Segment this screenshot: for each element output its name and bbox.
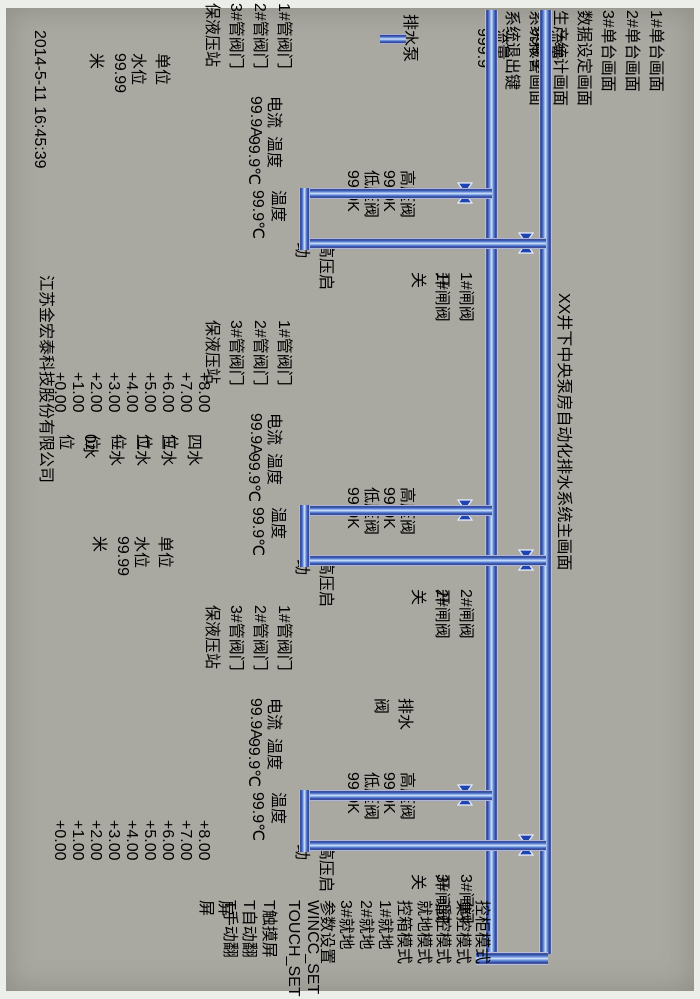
pump2-riser-b	[300, 555, 546, 566]
tank1-level-scale: +8.00+7.00+6.00+5.00+4.00+3.00+2.00+1.00…	[74, 372, 212, 430]
pump3-hv-start-label: 高压启动	[322, 844, 340, 896]
sensor-name: 电流	[264, 698, 288, 734]
scale-row: +1.00	[68, 820, 86, 878]
tank1-minor-ticks	[78, 373, 208, 377]
scale-label: +3.00	[104, 820, 122, 878]
pump2-gate-close-label: 2#闸阀关	[436, 589, 456, 647]
sensor-name: 低压阀	[361, 772, 385, 848]
drain-pump-pipe	[380, 34, 406, 44]
hydraulic-valve-label: 3#管阀门	[226, 320, 250, 386]
pump1-pump-cap-left	[226, 175, 294, 189]
pump3-riser-a	[300, 790, 492, 801]
sensor-name: 温度	[268, 190, 292, 230]
pump1-hp-valve-sensor: 高压阀99.9K	[401, 170, 421, 246]
pump2-hydraulic-pump-cap	[303, 323, 314, 331]
display-mini-label: 单位	[152, 53, 176, 153]
signal-line-2	[372, 40, 375, 872]
level-unit: 米	[86, 53, 110, 153]
display-mini-label: 单位	[155, 536, 179, 636]
pump3-hp-valve-sensor: 高压阀99.9K	[401, 772, 421, 848]
pump3-motor-current-label: 电流99.9A	[258, 698, 288, 734]
level-value: 99.99	[113, 536, 131, 636]
main-pipe-lower	[485, 10, 498, 955]
pump1-riser-b	[300, 238, 546, 249]
scale-row: +7.00	[176, 372, 194, 430]
mode-button-12[interactable]: T触摸屏	[266, 900, 283, 966]
pump2-hv-start-label: 高压启动	[322, 559, 340, 611]
pump1-motor-current-label: 电流99.9A	[258, 96, 288, 132]
mode-button-6[interactable]: 1#就地	[382, 900, 399, 966]
pump2-riser-a	[300, 505, 492, 516]
screenshot-viewport: 1#单台画面2#单台画面3#单台画面数据设定画面生产统计画面系统报警画面系统退出…	[0, 0, 700, 999]
scale-row: +7.00	[176, 820, 194, 878]
pump2-manifold	[299, 505, 310, 567]
mode-button-7[interactable]: 2#就地	[363, 900, 380, 966]
sensor-name: 温度	[268, 792, 292, 832]
pump1-gate-close-label: 1#闸阀关	[436, 272, 456, 330]
level-value: 99.99	[110, 53, 128, 153]
mode-button-1[interactable]: 控柜模式	[479, 900, 496, 966]
scale-row: +5.00	[140, 372, 158, 430]
scale-label: +5.00	[140, 372, 158, 430]
pump3-riser-b	[300, 840, 546, 851]
sensor-value: 99.9A	[246, 96, 264, 132]
sensor-name: 高压阀	[397, 170, 421, 246]
sensor-name: 高压阀	[397, 487, 421, 563]
scale-row: +6.00	[158, 820, 176, 878]
mode-button-2[interactable]: 集控模式	[460, 900, 477, 966]
drain-valve-label: 排水阀	[402, 698, 419, 744]
pump3-hydraulic-pump	[299, 612, 318, 642]
pump3-pump-cap-right	[226, 876, 294, 890]
pump1-lp-valve-sensor: 低压阀99.9K	[365, 170, 385, 246]
tank2-minor-ticks	[78, 821, 208, 825]
scale-label: +2.00	[86, 820, 104, 878]
scale-label: +7.00	[176, 820, 194, 878]
datetime-display: 2014-5-11 16:45:39	[30, 30, 48, 168]
tank1-level-button-4[interactable]: 一水位	[108, 434, 130, 472]
drain-pump-body	[338, 20, 382, 60]
scale-label: +3.00	[104, 372, 122, 430]
sensor-name: 电流	[264, 96, 288, 132]
sensor-value: 99.9K	[343, 487, 361, 563]
hydraulic-valve-label: 3#管阀门	[226, 3, 250, 69]
scale-row: +5.00	[140, 820, 158, 878]
sensor-value: 99.9℃	[248, 507, 268, 547]
scale-label: +4.00	[122, 820, 140, 878]
scale-row: +3.00	[104, 372, 122, 430]
pump2-pump-temp-label: 温度99.9℃	[260, 507, 292, 547]
pump3-pump-temp-label: 温度99.9℃	[260, 792, 292, 832]
scale-label: +8.00	[194, 372, 212, 430]
pump1-riser-a	[300, 188, 492, 199]
hydraulic-valve-label: 1#管阀门	[274, 605, 298, 671]
sensor-value: 99.9K	[343, 772, 361, 848]
nav-button-3[interactable]: 3#单台画面	[598, 10, 622, 974]
sensor-name: 电流	[264, 413, 288, 449]
scale-row: +2.00	[86, 820, 104, 878]
sensor-name: 高压阀	[397, 772, 421, 848]
hydraulic-valve-label: 2#管阀门	[250, 320, 274, 386]
pump1-hydraulic-station: 1#管阀门2#管阀门3#管阀门保液压站	[214, 3, 298, 69]
scale-label: +6.00	[158, 372, 176, 430]
pump2-lp-valve-sensor: 低压阀99.9K	[365, 487, 385, 563]
nav-button-1[interactable]: 1#单台画面	[646, 10, 670, 974]
pump1-hydraulic-pump	[299, 10, 318, 40]
scale-label: +5.00	[140, 820, 158, 878]
pump1-manifold	[299, 188, 310, 250]
pump2-pump-cap-right	[226, 591, 294, 605]
scale-row: +2.00	[86, 372, 104, 430]
drain-pump-label: 排水泵	[407, 14, 424, 62]
display-mini-labels: 单位水位	[131, 536, 179, 636]
scale-label: +1.00	[68, 372, 86, 430]
mode-button-4[interactable]: 就地模式	[421, 900, 438, 966]
pump2-motor-current-label: 电流99.9A	[258, 413, 288, 449]
hydraulic-valve-label: 3#管阀门	[226, 605, 250, 671]
mode-button-9[interactable]: 参数设置	[324, 900, 341, 966]
mode-button-5[interactable]: 控箱模式	[401, 900, 418, 966]
sensor-value: 99.9℃	[248, 792, 268, 832]
pump1-hv-start-label: 高压启动	[322, 242, 340, 294]
sensor-name: 温度	[268, 507, 292, 547]
pump1-pump-temp-label: 温度99.9℃	[260, 190, 292, 230]
sensor-value: 99.9A	[246, 413, 264, 449]
sensor-value: 99.9A	[246, 698, 264, 734]
pump2-hydraulic-station: 1#管阀门2#管阀门3#管阀门保液压站	[214, 320, 298, 386]
sensor-name: 低压阀	[361, 170, 385, 246]
mode-button-8[interactable]: 3#就地	[343, 900, 360, 966]
display-mini-label: 水位	[128, 53, 152, 153]
scale-label: +8.00	[194, 820, 212, 878]
tank1-level-button-1[interactable]: 四水位	[186, 434, 208, 472]
nav-button-7[interactable]: 系统退出键	[502, 10, 526, 974]
level-unit: 米	[89, 536, 113, 636]
mode-button-13[interactable]: T自动翻屏	[246, 900, 263, 966]
mode-button-14[interactable]: T手动翻屏	[227, 900, 244, 966]
pump3-pump-cap-left	[226, 777, 294, 791]
pump3-motor-endcap	[232, 678, 284, 692]
pump1-pump-cap-right	[226, 274, 294, 288]
nav-button-bar: 1#单台画面2#单台画面3#单台画面数据设定画面生产统计画面系统报警画面系统退出…	[582, 10, 670, 974]
pump2-hydraulic-pump	[299, 327, 318, 357]
pump1-signal-stub	[375, 216, 408, 219]
signal-line-1	[408, 40, 411, 740]
mode-button-10[interactable]: WINCC_SET	[304, 900, 321, 966]
pump3-lp-valve-sensor: 低压阀99.9K	[365, 772, 385, 848]
pump1-motor-endcap	[232, 76, 284, 90]
mode-button-3[interactable]: 遥控模式	[440, 900, 457, 966]
nav-button-2[interactable]: 2#单台画面	[622, 10, 646, 974]
scale-row: +3.00	[104, 820, 122, 878]
sensor-value: 99.9℃	[248, 190, 268, 230]
pump3-hydraulic-pump-cap	[303, 608, 314, 616]
hydraulic-valve-label: 1#管阀门	[274, 3, 298, 69]
pump3-manifold	[299, 790, 310, 852]
tank1-level-button-3[interactable]: 二水位	[134, 434, 156, 472]
sensor-name: 低压阀	[361, 487, 385, 563]
pump1-gate-open-label: 1#闸阀开	[460, 272, 480, 330]
scale-row: +4.00	[122, 372, 140, 430]
pump1-hydraulic-pump-cap	[303, 6, 314, 14]
tank2-level-scale: +8.00+7.00+6.00+5.00+4.00+3.00+2.00+1.00…	[74, 820, 212, 878]
scale-row: +1.00	[68, 372, 86, 430]
pump2-signal-stub	[375, 533, 408, 536]
scale-row: +6.00	[158, 372, 176, 430]
scale-row: +8.00	[194, 820, 212, 878]
page-title: XX井下中央泵房自动化排水系统主画面	[532, 293, 578, 733]
pump2-hp-valve-sensor: 高压阀99.9K	[401, 487, 421, 563]
scale-label: +4.00	[122, 372, 140, 430]
hydraulic-valve-label: 2#管阀门	[250, 3, 274, 69]
tank2-level-display: 单位水位99.99米	[146, 536, 179, 636]
tank1-level-button-5[interactable]: 0水位	[82, 434, 104, 472]
pump2-pump-cap-left	[226, 492, 294, 506]
pump2-gate-open-label: 2#闸阀开	[460, 589, 480, 647]
scale-label: +7.00	[176, 372, 194, 430]
company-name-bar: 江苏金宏泰科技股份有限公司	[8, 275, 60, 831]
scale-row: +8.00	[194, 372, 212, 430]
display-mini-labels: 单位水位	[128, 53, 176, 153]
hmi-rotated-stage: 1#单台画面2#单台画面3#单台画面数据设定画面生产统计画面系统报警画面系统退出…	[0, 0, 700, 999]
hydraulic-valve-label: 2#管阀门	[250, 605, 274, 671]
scale-label: +6.00	[158, 820, 176, 878]
tank1-level-button-2[interactable]: 三水位	[160, 434, 182, 472]
mode-button-11[interactable]: TOUCH_SET	[285, 900, 302, 966]
pump3-hydraulic-station: 1#管阀门2#管阀门3#管阀门保液压站	[214, 605, 298, 671]
sensor-value: 99.9K	[343, 170, 361, 246]
scale-label: +1.00	[68, 820, 86, 878]
tank1-level-display: 单位水位99.99米	[143, 53, 176, 153]
display-mini-label: 水位	[131, 536, 155, 636]
mode-button-column: 控柜模式集控模式遥控模式就地模式控箱模式1#就地2#就地3#就地参数设置WINC…	[224, 900, 496, 968]
pump2-motor-endcap	[232, 393, 284, 407]
scale-row: +4.00	[122, 820, 140, 878]
hydraulic-valve-label: 1#管阀门	[274, 320, 298, 386]
pump3-signal-stub	[375, 818, 408, 821]
scale-label: +2.00	[86, 372, 104, 430]
